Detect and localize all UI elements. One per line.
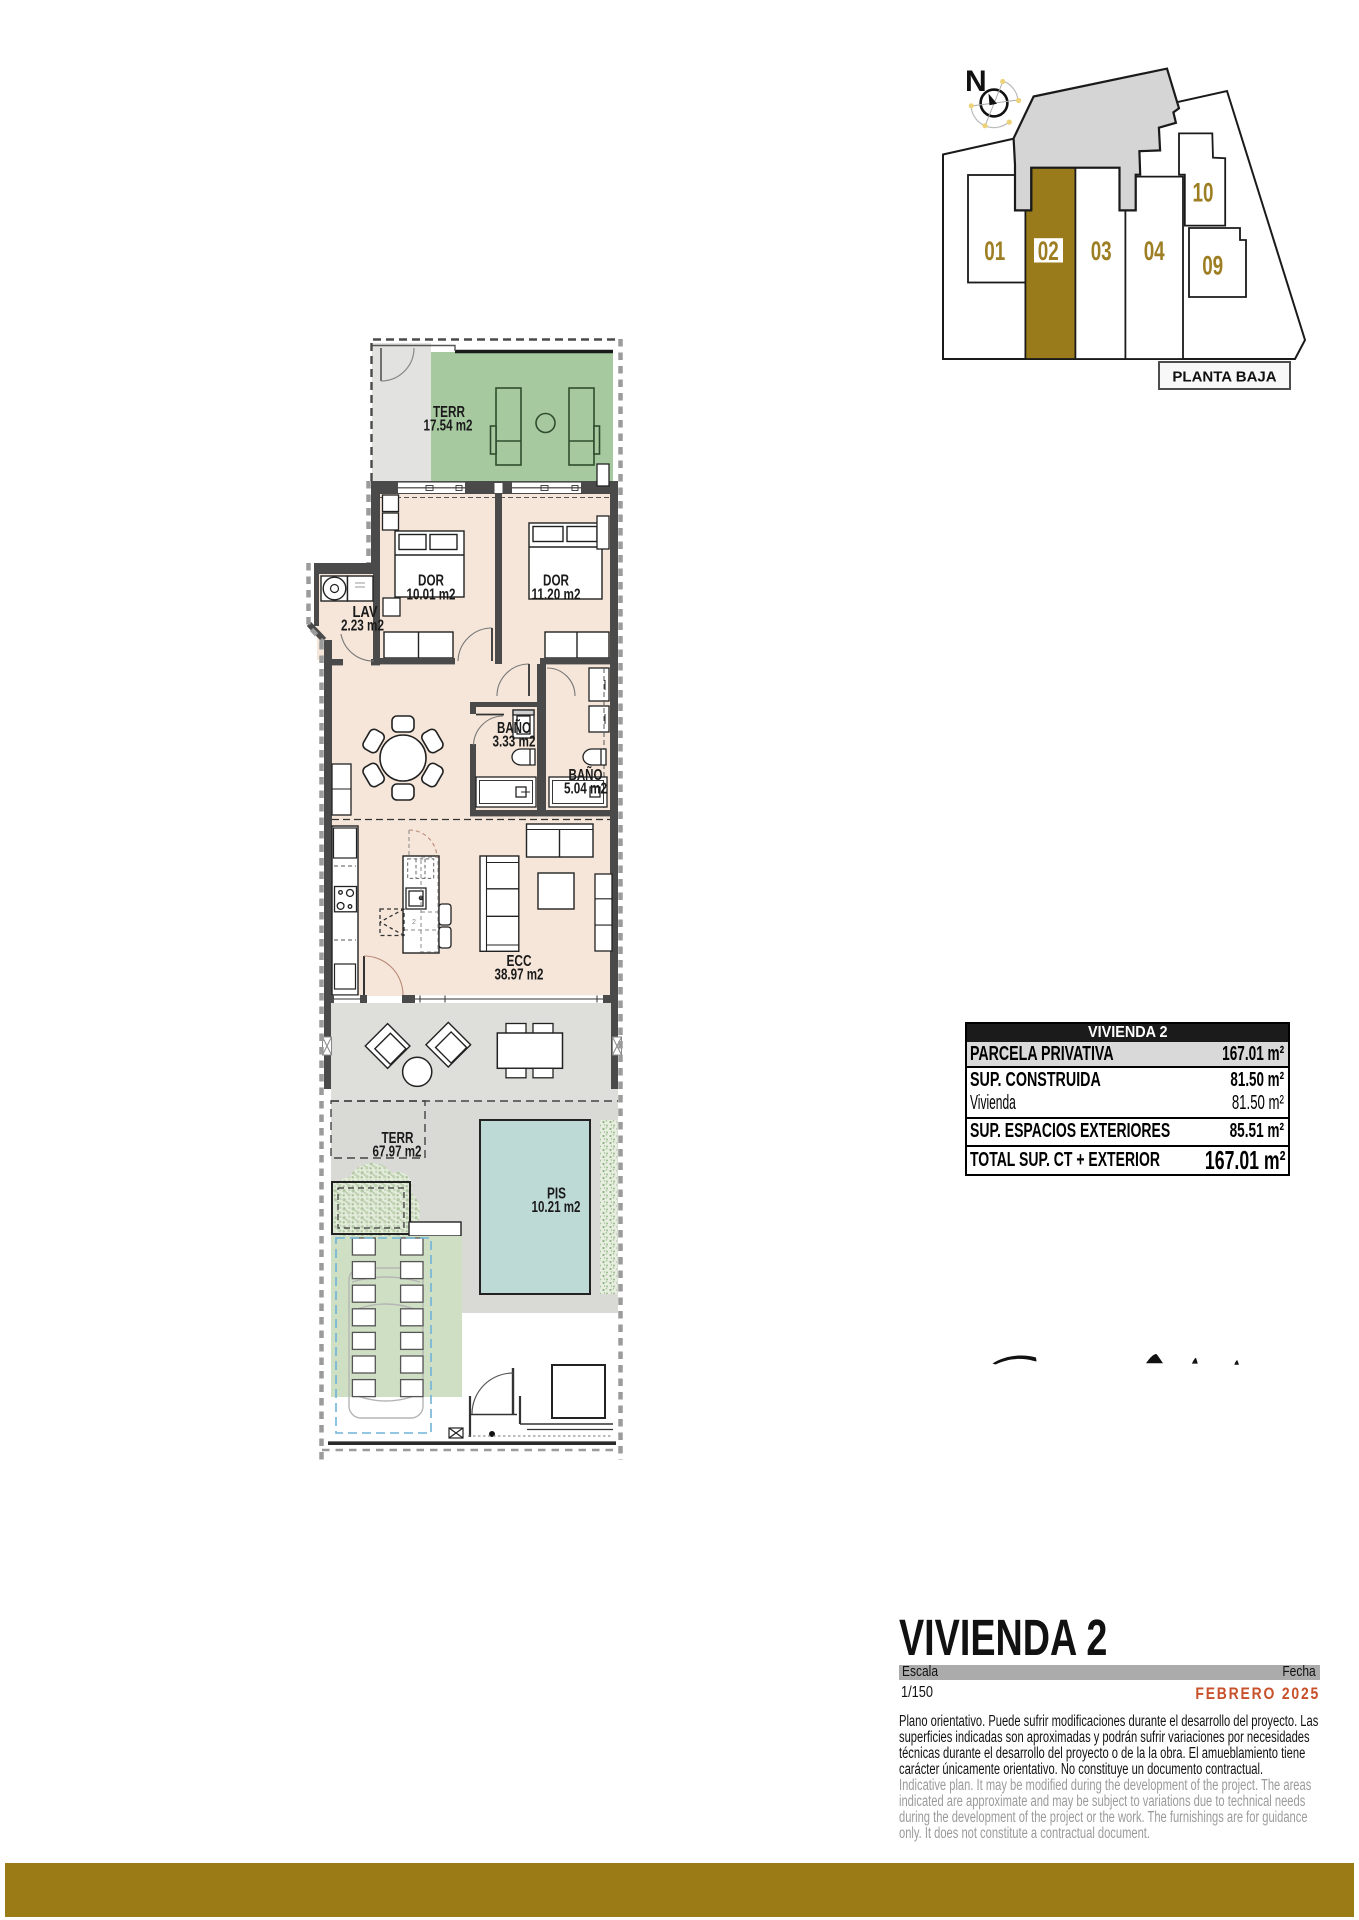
- svg-text:04: 04: [1144, 236, 1165, 266]
- svg-text:2.23 m2: 2.23 m2: [341, 618, 384, 635]
- svg-text:3.33 m2: 3.33 m2: [493, 734, 536, 751]
- svg-text:01: 01: [984, 236, 1005, 266]
- svg-text:PLANTA BAJA: PLANTA BAJA: [1172, 369, 1276, 386]
- svg-text:17.54 m2: 17.54 m2: [424, 418, 473, 435]
- svg-text:2: 2: [412, 919, 416, 926]
- svg-text:02: 02: [1038, 236, 1059, 266]
- svg-text:67.97 m2: 67.97 m2: [373, 1144, 422, 1161]
- svg-text:10: 10: [1193, 178, 1214, 208]
- svg-text:10.01 m2: 10.01 m2: [407, 587, 456, 604]
- svg-text:03: 03: [1091, 236, 1112, 266]
- svg-text:38.97 m2: 38.97 m2: [495, 967, 544, 984]
- svg-text:10.21 m2: 10.21 m2: [532, 1199, 581, 1216]
- svg-text:5.04 m2: 5.04 m2: [564, 781, 607, 798]
- svg-text:11.20 m2: 11.20 m2: [532, 587, 581, 604]
- svg-text:09: 09: [1202, 251, 1223, 281]
